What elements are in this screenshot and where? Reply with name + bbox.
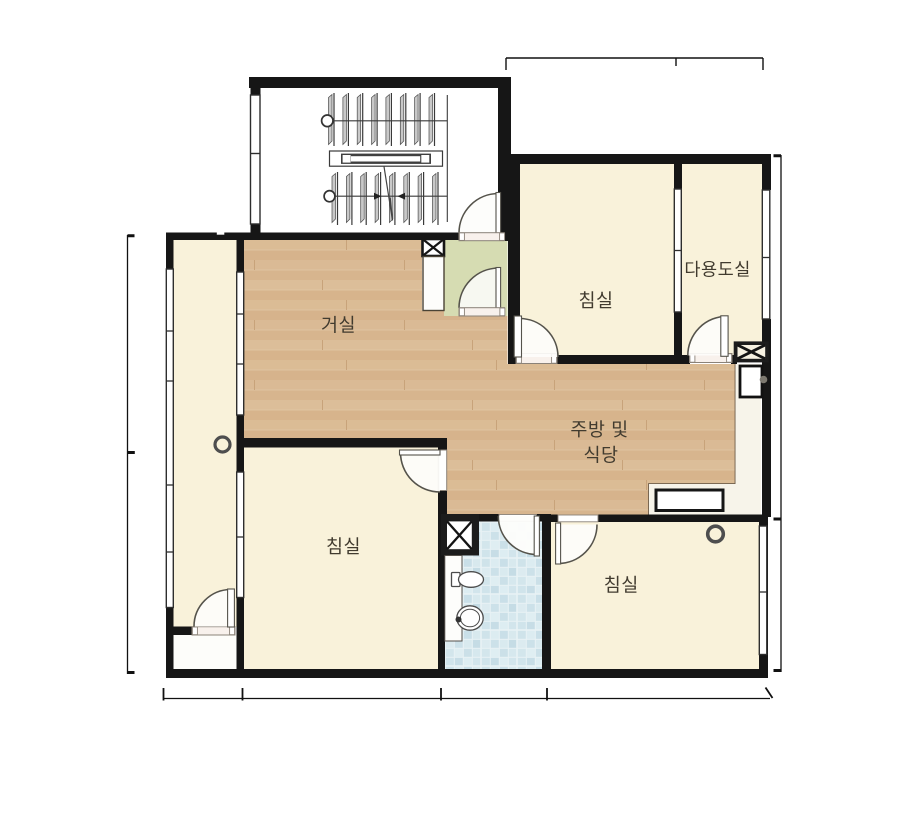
svg-text:침실: 침실: [604, 575, 639, 596]
svg-text:침실: 침실: [578, 290, 613, 311]
svg-text:주방 및: 주방 및: [570, 419, 628, 440]
svg-text:침실: 침실: [326, 536, 361, 557]
svg-text:다용도실: 다용도실: [684, 260, 750, 280]
svg-text:식당: 식당: [583, 445, 618, 466]
svg-text:거실: 거실: [321, 315, 356, 336]
